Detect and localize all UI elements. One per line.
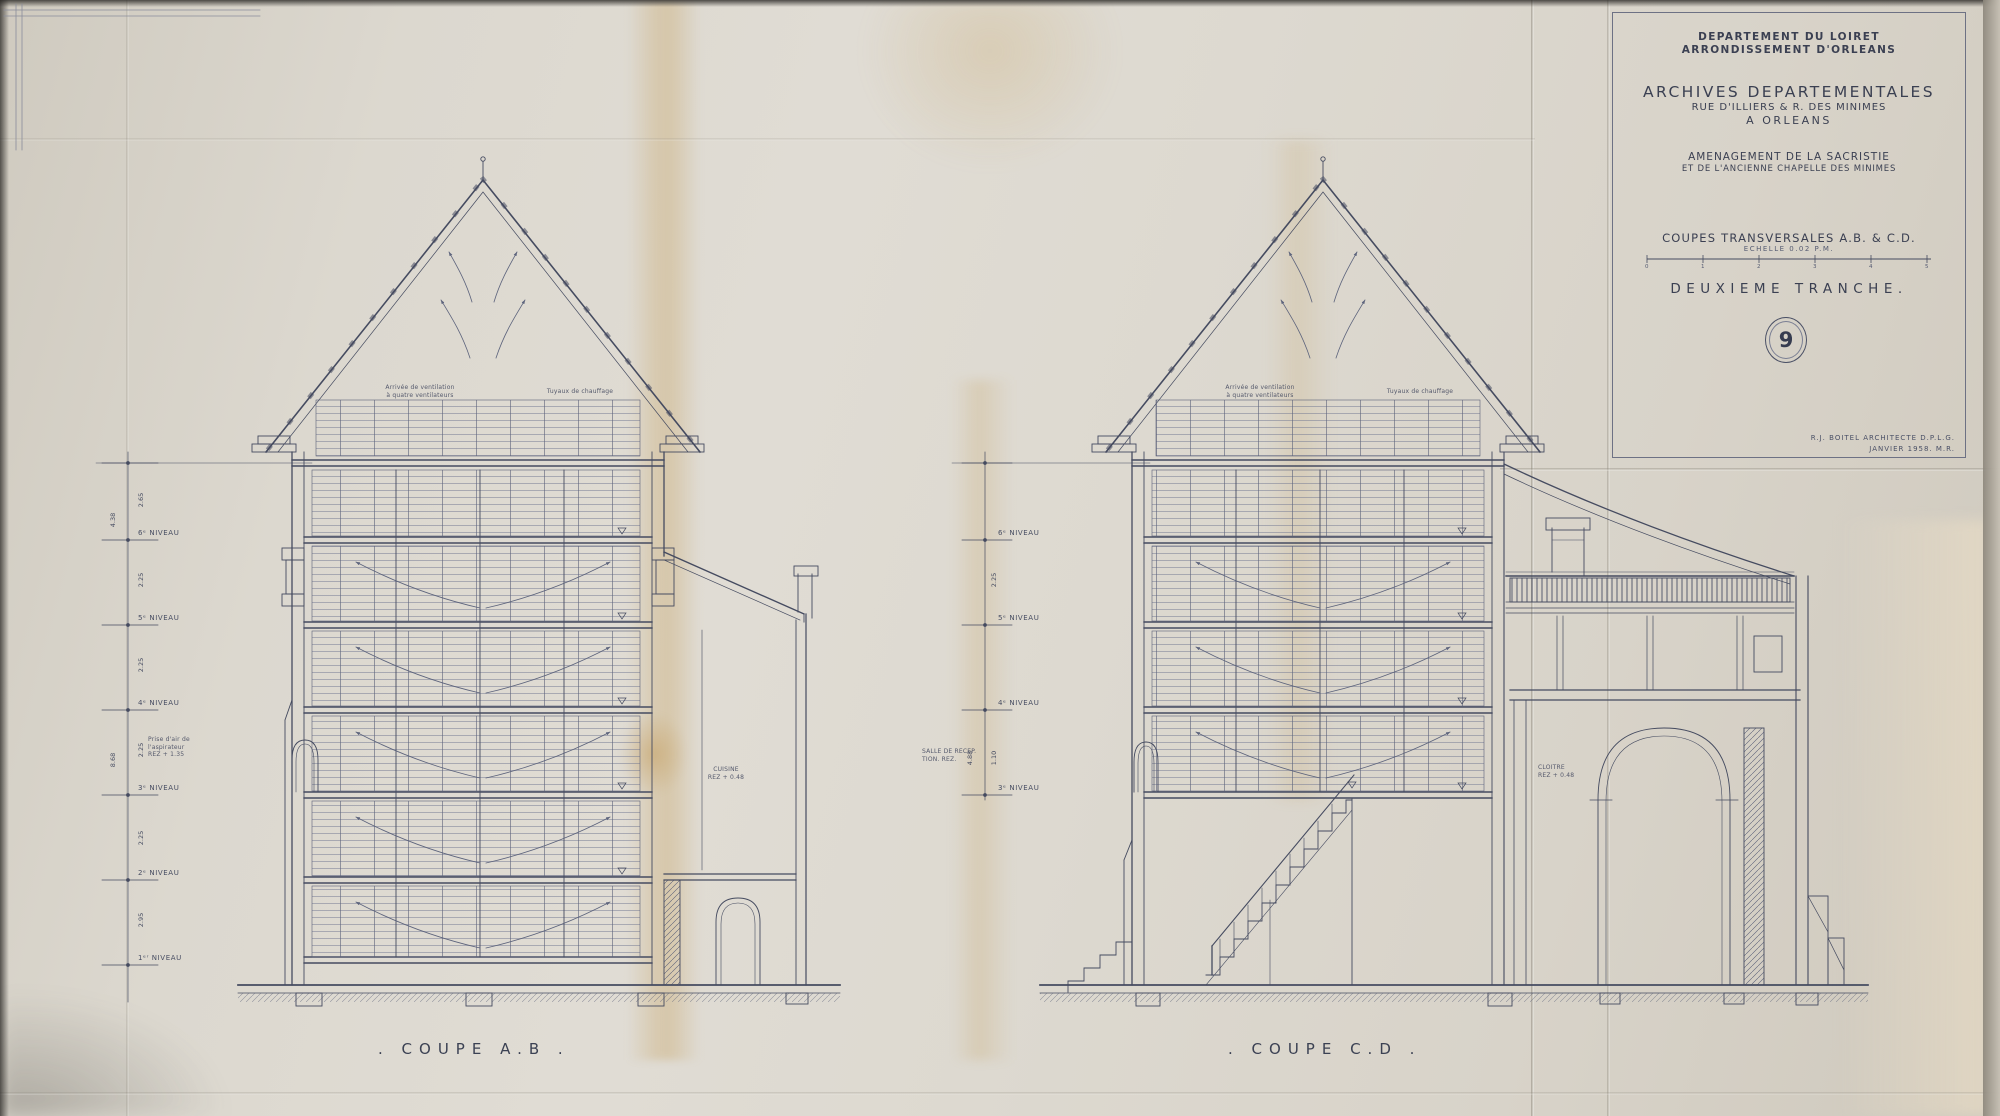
- coupe-ab: [96, 157, 840, 1006]
- svg-text:1: 1: [1701, 264, 1705, 269]
- coupe-ab-roof: [266, 157, 700, 452]
- department-line: DEPARTEMENT DU LOIRET: [1613, 31, 1965, 43]
- chauffage-note-right: Tuyaux de chauffage: [1380, 388, 1460, 396]
- chauffage-note-left: Tuyaux de chauffage: [540, 388, 620, 396]
- coupe-cd-roof: [1106, 157, 1540, 452]
- city-line: A ORLEANS: [1613, 114, 1965, 127]
- project-line1: AMENAGEMENT DE LA SACRISTIE: [1613, 151, 1965, 163]
- svg-text:2: 2: [1757, 264, 1761, 269]
- svg-text:3: 3: [1813, 264, 1817, 269]
- level-label: 6ᵉ NIVEAU: [998, 529, 1039, 537]
- level-label: 1ᵉʳ NIVEAU: [138, 954, 182, 962]
- vent-note-line1: Arrivée de ventilation: [1225, 384, 1294, 391]
- sheet-number: 9: [1779, 328, 1794, 352]
- level-label: 5ᵉ NIVEAU: [998, 614, 1039, 622]
- coupe-ab-cotes: [618, 528, 626, 874]
- level-label: 2ᵉ NIVEAU: [138, 869, 179, 877]
- fold-line-4: [1500, 468, 2000, 471]
- dim-value: 2.25: [990, 567, 998, 593]
- drawing-title: COUPES TRANSVERSALES A.B. & C.D.: [1613, 231, 1965, 245]
- coupe-ab-label: . COUPE A.B .: [378, 1040, 570, 1058]
- coupe-ab-vent-arrows: [356, 252, 610, 948]
- level-label: 4ᵉ NIVEAU: [138, 699, 179, 707]
- cuisine-note: CUISINE REZ + 0.48: [688, 766, 764, 781]
- prise-air-note: Prise d'air de l'aspirateur REZ + 1.35: [148, 736, 238, 759]
- dim-value: 2.25: [137, 825, 145, 851]
- stain-top-blotch: [860, 0, 1120, 170]
- coupe-cd-label: . COUPE C.D .: [1228, 1040, 1421, 1058]
- fold-line-5: [0, 138, 1535, 141]
- stain-band-left: [628, 0, 700, 1060]
- coupe-ab-door: [292, 740, 318, 792]
- coupe-cd-floors: [1132, 460, 1504, 798]
- project-line2: ET DE L'ANCIENNE CHAPELLE DES MINIMES: [1613, 164, 1965, 174]
- svg-text:5: 5: [1925, 264, 1929, 269]
- sheet-border-marks: [4, 4, 260, 150]
- level-label: 4ᵉ NIVEAU: [998, 699, 1039, 707]
- stain-spot: [618, 712, 688, 796]
- coupe-cd-cloister: [1504, 464, 1844, 985]
- coupe-cd-door: [1068, 742, 1158, 992]
- svg-text:4: 4: [1869, 264, 1873, 269]
- dim-value: 4.38: [109, 507, 117, 533]
- sheet-number-badge: 9: [1765, 317, 1807, 363]
- coupe-ab-walls: [282, 452, 674, 985]
- level-label: 3ᵉ NIVEAU: [998, 784, 1039, 792]
- vent-note-line2: à quatre ventilateurs: [1226, 392, 1293, 399]
- architect-line2: JANVIER 1958. M.R.: [1869, 445, 1955, 453]
- paper-right-edge: [1983, 0, 2000, 1116]
- coupe-cd-vent-arrows: [1196, 252, 1450, 778]
- svg-text:0: 0: [1645, 264, 1649, 269]
- scale-label: ECHELLE 0.02 P.M.: [1613, 245, 1965, 253]
- stain-band-right: [1268, 140, 1332, 800]
- arrondissement-line: ARRONDISSEMENT D'ORLEANS: [1613, 44, 1965, 56]
- coupe-cd-cotes: [1348, 528, 1466, 789]
- fold-line-6: [0, 1092, 2000, 1095]
- blueprint-sheet: 6ᵉ NIVEAU 5ᵉ NIVEAU 4ᵉ NIVEAU 3ᵉ NIVEAU …: [0, 0, 2000, 1116]
- coupe-cd-stairs: [1206, 775, 1354, 985]
- level-label: 3ᵉ NIVEAU: [138, 784, 179, 792]
- level-label: 5ᵉ NIVEAU: [138, 614, 179, 622]
- phase-line: DEUXIEME TRANCHE.: [1613, 281, 1965, 297]
- vent-note-line1: Arrivée de ventilation: [385, 384, 454, 391]
- coupe-ab-floors: [292, 460, 664, 963]
- coupe-cd-cornices: [1092, 436, 1544, 452]
- architect-line1: R.J. BOITEL ARCHITECTE D.P.L.G.: [1811, 434, 1955, 442]
- coupe-ab-dim-column: [96, 452, 312, 1002]
- backing-top-edge: [0, 0, 2000, 7]
- vent-note-right: Arrivée de ventilation à quatre ventilat…: [1202, 384, 1318, 399]
- coupe-ab-cornices: [252, 436, 704, 452]
- fold-line-3: [126, 0, 129, 1116]
- coupe-cd-shelving: [1152, 400, 1484, 791]
- dim-value: 2.25: [137, 652, 145, 678]
- main-title: ARCHIVES DEPARTEMENTALES: [1613, 83, 1965, 101]
- backing-left-edge: [0, 0, 9, 1116]
- coupe-ab-shelving: [312, 400, 640, 957]
- salle-note: SALLE DE RECEP. TION. REZ.: [922, 748, 1002, 763]
- stain-right-cream: [1838, 520, 1988, 1116]
- coupe-cd-walls: [1124, 452, 1504, 985]
- stain-bottom-left-shadow: [0, 990, 230, 1116]
- vent-note-line2: à quatre ventilateurs: [386, 392, 453, 399]
- title-block: DEPARTEMENT DU LOIRET ARRONDISSEMENT D'O…: [1612, 12, 1966, 458]
- address-line: RUE D'ILLIERS & R. DES MINIMES: [1613, 102, 1965, 113]
- dim-value: 8.68: [109, 747, 117, 773]
- vent-note-left: Arrivée de ventilation à quatre ventilat…: [362, 384, 478, 399]
- level-label: 6ᵉ NIVEAU: [138, 529, 179, 537]
- dim-value: 2.25: [137, 737, 145, 763]
- dim-value: 2.95: [137, 907, 145, 933]
- coupe-ab-ground: [238, 985, 840, 1006]
- scale-bar: 0 1 2 3 4 5: [1643, 253, 1935, 269]
- fold-line-2: [1607, 0, 1610, 1116]
- dim-value: 2.65: [137, 487, 145, 513]
- coupe-cd-ground: [1040, 985, 1868, 1006]
- dim-value: 2.25: [137, 567, 145, 593]
- stain-band-mid: [952, 380, 1012, 1060]
- cloitre-note: CLOITRE REZ + 0.48: [1538, 764, 1608, 779]
- fold-line-1: [1531, 0, 1534, 1116]
